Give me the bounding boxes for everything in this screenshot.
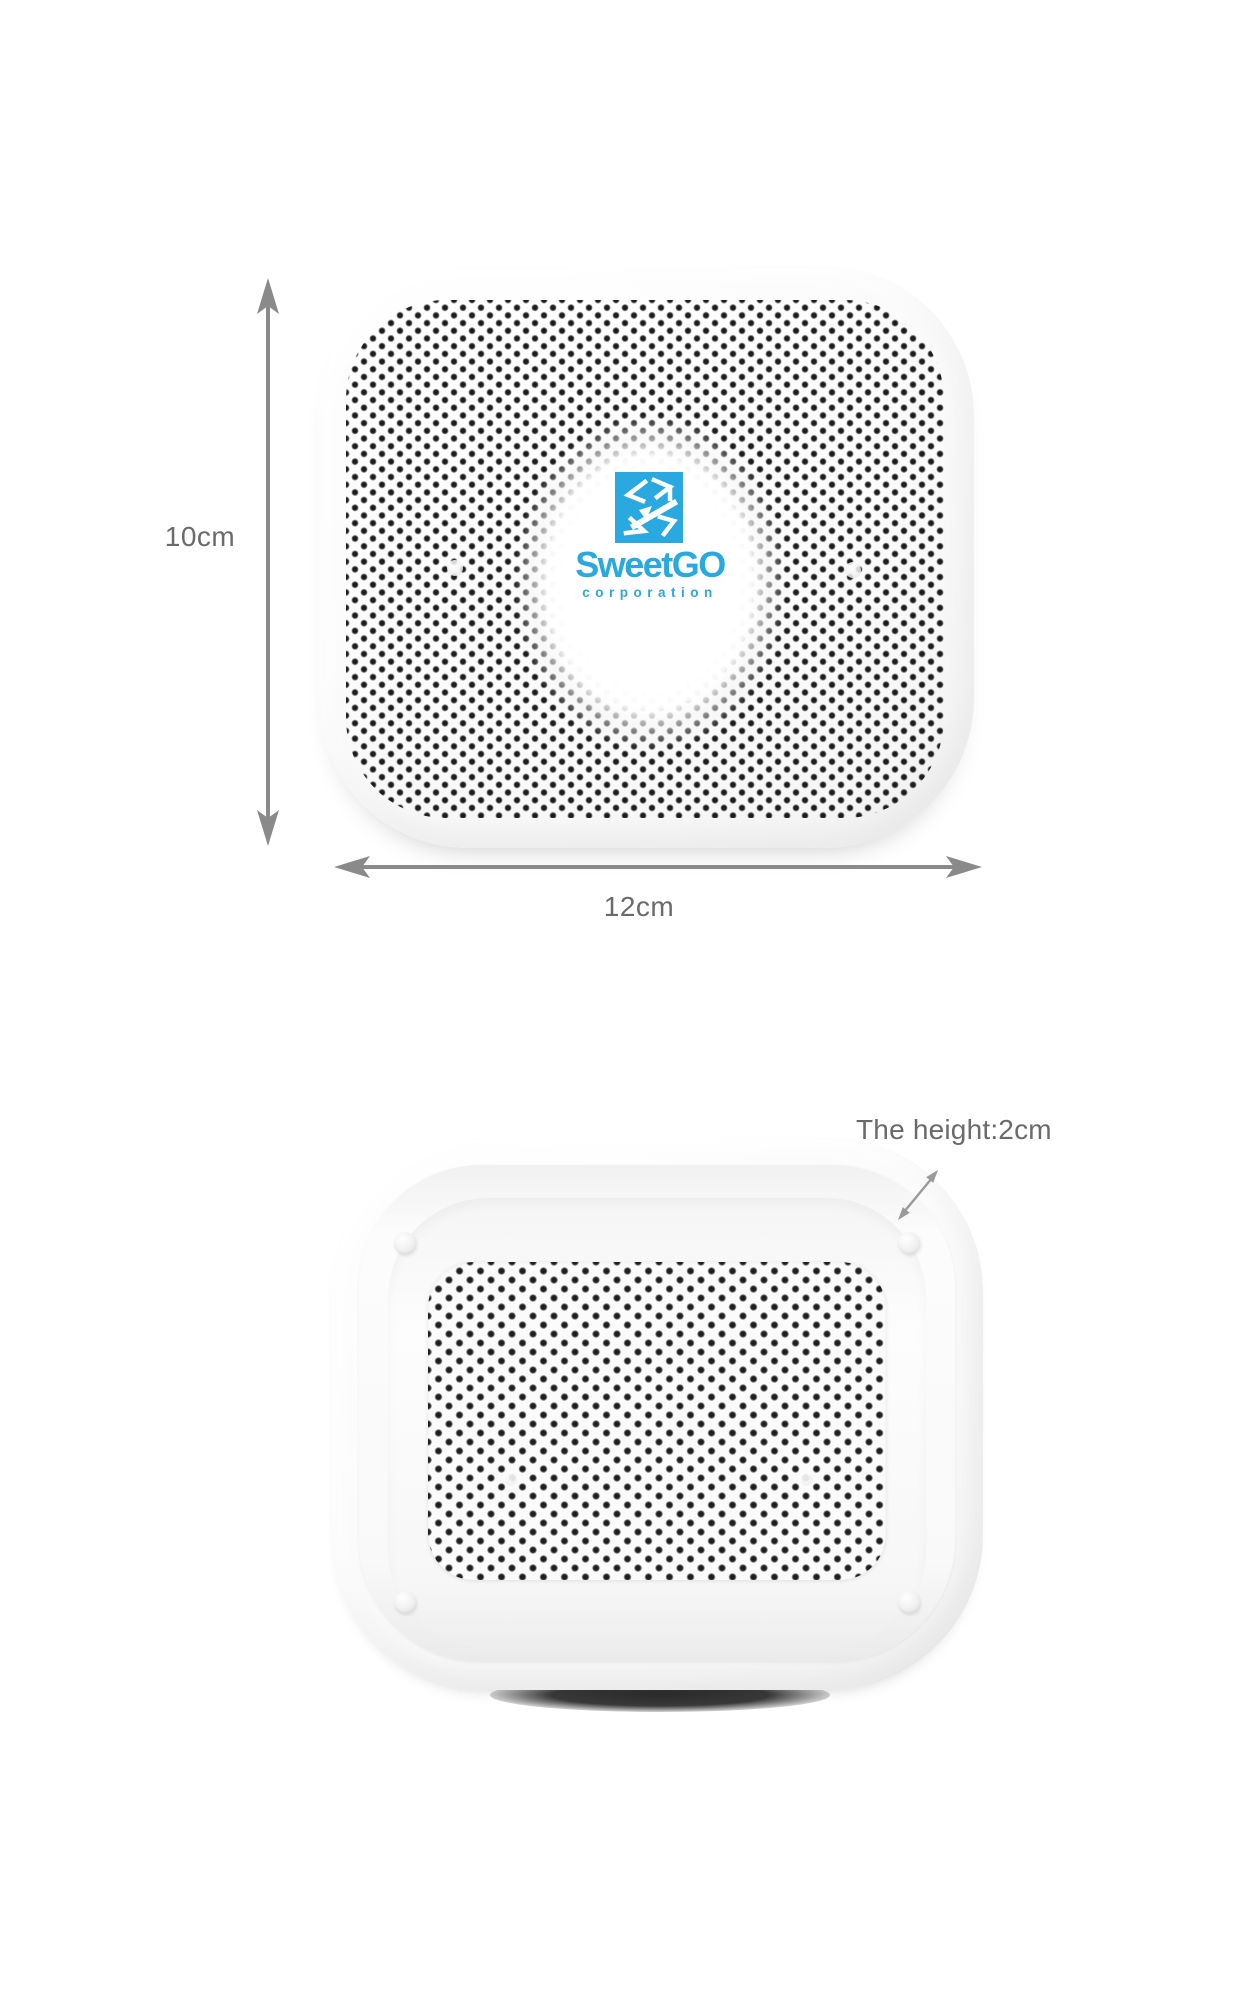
back-height-callout-arrow-icon [888,1162,952,1230]
logo-mark-icon [615,472,683,543]
surface-dimple-right [845,562,861,578]
height-dimension-arrow-icon [248,266,288,858]
screw-top-right [898,1232,920,1254]
screw-top-left [394,1232,416,1254]
back-height-callout-label: The height:2cm [856,1114,1052,1146]
back-dimple-left [505,1474,517,1486]
logo-badge [615,472,683,543]
surface-dimple-left [447,560,463,576]
screw-bottom-right [898,1591,920,1613]
brand-subtitle-text: corporation [500,585,800,600]
back-dimple-right [801,1474,813,1486]
product-dimension-image: 10cm SweetGO corporation [0,0,1245,2000]
speaker-back-grille [428,1262,886,1580]
width-dimension-arrow-icon [324,847,992,887]
screw-bottom-left [394,1591,416,1613]
brand-name-text: SweetGO [500,546,800,584]
